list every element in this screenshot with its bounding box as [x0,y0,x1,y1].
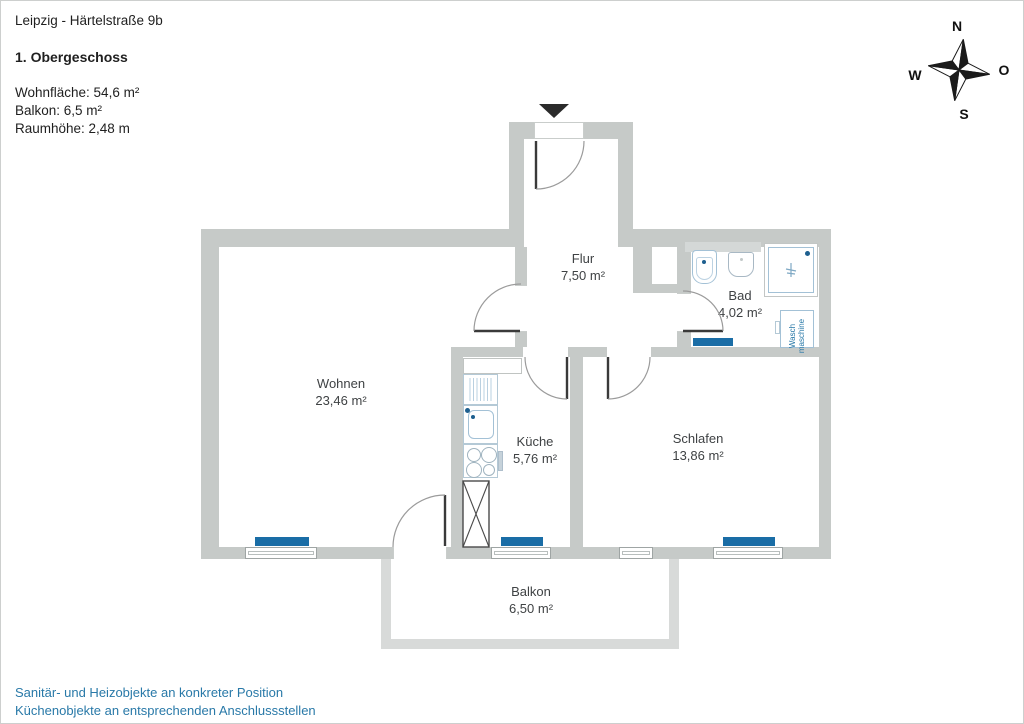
footer-note-kitchen: Küchenobjekte an entsprechenden Anschlus… [15,703,316,718]
wall [677,332,691,347]
radiator [501,537,543,546]
wall [451,347,463,547]
stat-living-area: Wohnfläche: 54,6 m² [15,85,139,100]
stove-handle [498,451,503,471]
wall [509,122,524,229]
door-arc [536,141,584,189]
radiator [693,338,733,346]
wall [618,122,633,229]
stat-balcony: Balkon: 6,5 m² [15,103,102,118]
entrance-door-opening [534,122,584,139]
room-label-schlafen: Schlafen13,86 m² [672,430,723,464]
room-label-balkon: Balkon6,50 m² [509,583,553,617]
balcony-door-opening [393,547,447,559]
shower-tray [768,247,814,293]
compass-north-label: N [952,18,962,34]
washing-machine-label: Wasch [788,306,797,366]
window [619,547,653,559]
wall [515,332,527,347]
room-label-wohnen: Wohnen23,46 m² [315,375,366,409]
compass-east-label: O [999,62,1010,78]
compass-point [959,62,991,74]
wall [633,247,652,293]
balcony-wall [381,559,391,649]
bath-door-opening [677,293,691,332]
window [245,547,317,559]
kitchen-sink [463,405,498,444]
room-label-kueche: Küche5,76 m² [513,433,557,467]
balcony-wall [381,639,679,649]
entrance-arrow-icon [539,104,569,118]
door-arc [474,284,521,331]
kitchen-counter [463,358,522,374]
footer-note-sanitary: Sanitär- und Heizobjekte an konkreter Po… [15,685,283,700]
wall [515,247,527,285]
tall-cabinet [463,481,489,547]
wall [201,229,524,247]
compass-point [959,39,971,71]
balcony-wall [669,559,679,649]
compass-south-label: S [959,106,968,122]
wall [201,229,219,559]
door-arc [608,357,650,399]
plan-location: Leipzig - Härtelstraße 9b [15,13,163,28]
compass-rose: N O S W [901,6,1019,134]
compass-point [958,70,990,82]
compass-point [955,70,967,102]
window [491,547,551,559]
door-arc [525,357,567,399]
radiator [255,537,309,546]
room-label-flur: Flur7,50 m² [561,250,605,284]
washing-machine-label: maschine [797,306,806,366]
radiator [723,537,775,546]
toilet [692,250,717,284]
compass-point [928,58,960,70]
shaft-niche-wall [652,284,677,293]
washing-machine-hose [775,321,780,334]
washing-machine: Wasch maschine [780,310,814,348]
door-arc [393,495,445,547]
floorplan-page: Leipzig - Härtelstraße 9b 1. Obergeschos… [0,0,1024,724]
compass-point [947,69,959,101]
compass-point [927,66,959,78]
kitchen-stove [463,444,498,478]
kitchen-drainboard [463,374,498,405]
living-door-opening [515,285,527,332]
bathroom-sink [728,252,754,277]
wall [570,357,583,547]
room-label-bad: Bad4,02 m² [718,287,762,321]
plan-floor-title: 1. Obergeschoss [15,49,128,65]
compass-west-label: W [908,67,922,83]
compass-point [951,38,963,70]
window [713,547,783,559]
wall [677,247,691,293]
wall [568,347,607,357]
wall [819,229,831,559]
stat-room-height: Raumhöhe: 2,48 m [15,121,130,136]
